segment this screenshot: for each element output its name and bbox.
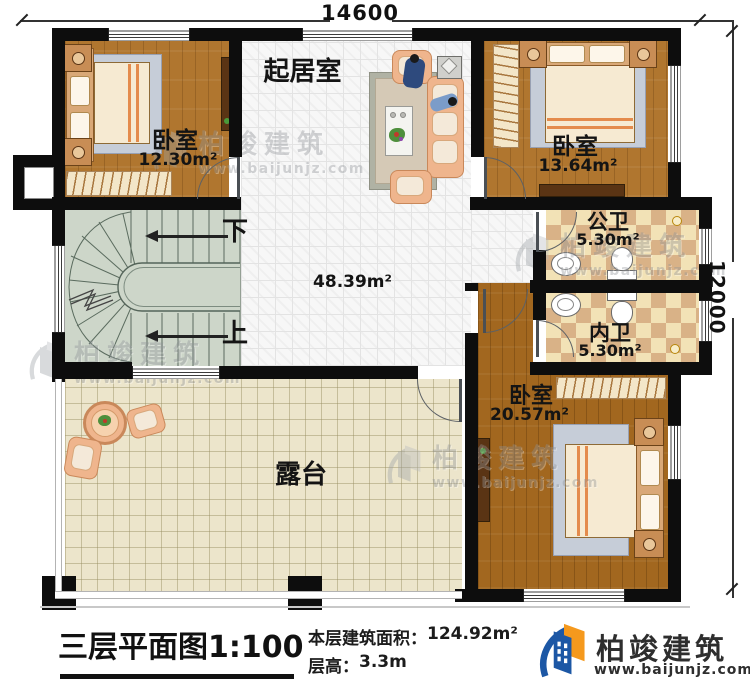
terrace-railing xyxy=(55,591,462,599)
window xyxy=(108,28,190,41)
sofa-cushion xyxy=(432,140,458,164)
bedroom3-area: 20.57m² xyxy=(482,407,577,425)
up-arrow-line xyxy=(158,335,228,338)
dimension-line xyxy=(392,20,734,22)
brand-website: www.baijunjz.com xyxy=(594,662,750,678)
flower-dot xyxy=(103,419,107,423)
wall-segment xyxy=(471,41,484,157)
person-head xyxy=(410,54,419,63)
nightstand xyxy=(64,44,92,72)
plan-caption: 三层平面图1:100 xyxy=(58,622,318,662)
window xyxy=(668,65,681,163)
stairs-up-label: 上 xyxy=(221,321,249,348)
bed-stripe xyxy=(577,446,580,536)
terrace-label: 露台 xyxy=(270,462,332,489)
wall-segment xyxy=(220,366,418,379)
window xyxy=(132,366,220,379)
sofa-cushion xyxy=(432,112,458,136)
floor-area-value: 124.92m² xyxy=(427,624,518,646)
cup xyxy=(400,112,406,118)
person-head xyxy=(448,97,457,106)
door-leaf xyxy=(484,157,487,199)
flower-dot xyxy=(394,132,399,137)
bed-stripe xyxy=(585,446,588,536)
wall-segment xyxy=(530,280,712,293)
window xyxy=(302,28,413,41)
bed-stripe xyxy=(547,118,633,121)
floor-height-label: 层高： xyxy=(308,652,359,674)
pillow xyxy=(589,45,625,63)
sink-basin xyxy=(557,298,574,311)
terrace-floor xyxy=(65,379,462,596)
bed-stripe xyxy=(547,126,633,129)
floor-height-value: 3.3m xyxy=(359,652,407,674)
plan-title: 三层平面图 xyxy=(58,622,208,666)
bedroom2-wardrobe xyxy=(493,44,519,148)
nightstand xyxy=(629,40,657,68)
nightstand xyxy=(634,530,664,558)
up-arrow-icon xyxy=(145,330,158,342)
terrace-railing xyxy=(55,379,62,598)
hall-area: 48.39m² xyxy=(310,274,395,292)
nightstand xyxy=(634,418,664,446)
wall-segment xyxy=(533,293,546,320)
door-leaf xyxy=(459,379,462,422)
dimension-line xyxy=(732,21,734,262)
plant-dot xyxy=(480,448,486,454)
shower-drain xyxy=(670,344,680,354)
floor-height-line: 层高：3.3m xyxy=(308,652,407,674)
sink-basin xyxy=(557,257,574,270)
floor-area-line: 本层建筑面积：124.92m² xyxy=(308,624,518,646)
nightstand xyxy=(64,138,92,166)
down-arrow-icon xyxy=(145,230,158,242)
hall-nook-floor xyxy=(471,210,533,283)
dimension-width-label: 14600 xyxy=(320,2,400,24)
dimension-line xyxy=(732,318,734,598)
floor-area-label: 本层建筑面积： xyxy=(308,624,427,646)
pillow xyxy=(640,450,660,486)
wall-segment xyxy=(530,362,712,375)
door-leaf xyxy=(483,289,486,333)
dimension-height-label: 12000 xyxy=(705,260,727,320)
door-leaf xyxy=(536,212,539,252)
flower-dot xyxy=(399,137,403,141)
bedroom2-area: 13.64m² xyxy=(508,158,648,176)
window xyxy=(52,245,65,333)
public-bath-area: 5.30m² xyxy=(568,232,648,249)
wall-segment xyxy=(465,333,478,589)
door-leaf xyxy=(536,320,539,357)
bumpout-niche xyxy=(24,167,54,199)
public-bath-toilet-bowl xyxy=(611,247,633,271)
cup xyxy=(390,112,396,118)
window xyxy=(523,589,625,602)
stairs-down-label: 下 xyxy=(221,219,249,246)
shower-drain xyxy=(672,216,682,226)
wall-segment xyxy=(668,375,681,602)
pillow xyxy=(549,45,585,63)
pillow xyxy=(640,494,660,530)
public-bath-toilet-tank xyxy=(607,270,637,280)
floor-plan-canvas: 柏竣建筑 www.baijunjz.com 柏竣建筑 www.baijunjz.… xyxy=(0,0,750,694)
down-arrow-line xyxy=(158,235,228,238)
ground-line xyxy=(40,606,690,608)
living-room-label: 起居室 xyxy=(240,59,365,86)
window xyxy=(668,425,681,480)
inner-bath-area: 5.30m² xyxy=(570,343,650,360)
wall-segment xyxy=(465,283,478,291)
bedroom2-dresser xyxy=(539,184,625,197)
nightstand xyxy=(519,40,547,68)
plan-scale: 1:100 xyxy=(208,630,304,665)
armchair-cushion xyxy=(396,176,424,196)
bedroom1-area: 12.30m² xyxy=(108,152,248,170)
building-logo-icon xyxy=(536,620,592,682)
pillow xyxy=(70,76,90,106)
wall-segment xyxy=(52,362,132,379)
bedroom1-closet xyxy=(66,171,172,196)
dimension-line xyxy=(20,20,330,22)
caption-underline xyxy=(60,674,294,679)
